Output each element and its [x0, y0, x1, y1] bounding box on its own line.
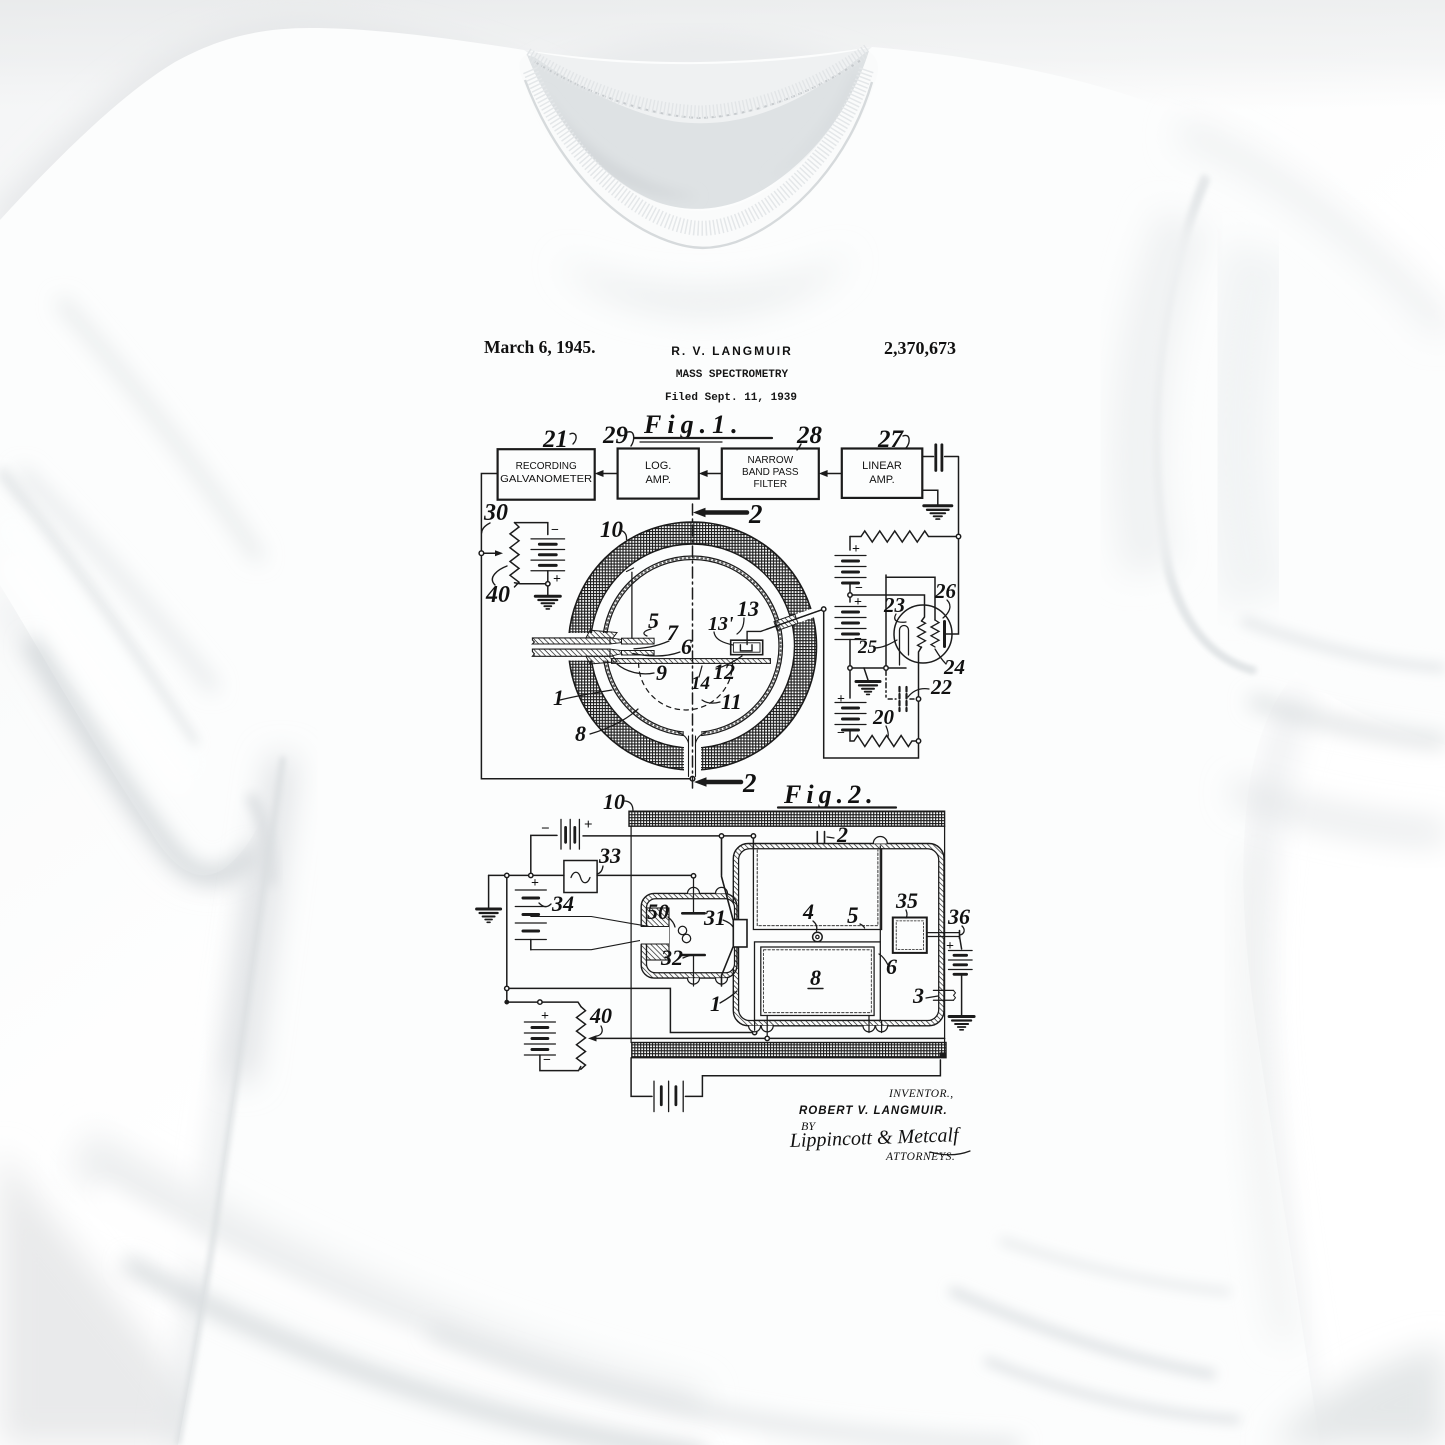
svg-text:RECORDING: RECORDING [516, 461, 577, 472]
svg-text:+: + [852, 542, 860, 557]
svg-text:NARROW: NARROW [748, 455, 794, 466]
svg-text:1: 1 [553, 685, 564, 710]
svg-text:March 6, 1945.: March 6, 1945. [484, 337, 595, 357]
svg-text:13': 13' [708, 613, 734, 635]
svg-text:21: 21 [542, 426, 568, 453]
svg-text:R. V. LANGMUIR: R. V. LANGMUIR [671, 344, 793, 358]
svg-text:35: 35 [895, 888, 918, 913]
svg-text:−: − [551, 523, 559, 538]
svg-text:40: 40 [589, 1003, 612, 1028]
svg-text:+: + [584, 817, 593, 833]
svg-text:33: 33 [598, 843, 621, 868]
svg-text:3: 3 [912, 983, 924, 1008]
svg-text:13: 13 [737, 596, 759, 621]
svg-text:30: 30 [483, 500, 508, 526]
svg-text:−: − [541, 821, 550, 837]
svg-text:FILTER: FILTER [753, 479, 787, 490]
svg-text:27: 27 [877, 426, 905, 453]
svg-text:GALVANOMETER: GALVANOMETER [500, 474, 592, 485]
svg-text:36: 36 [947, 904, 970, 929]
svg-text:10: 10 [603, 789, 625, 814]
svg-text:4: 4 [802, 899, 814, 924]
svg-text:22: 22 [930, 675, 953, 699]
svg-text:1: 1 [710, 991, 721, 1016]
svg-text:11: 11 [721, 689, 742, 714]
svg-text:2: 2 [748, 499, 763, 529]
svg-text:14: 14 [691, 673, 710, 694]
svg-text:LINEAR: LINEAR [862, 460, 902, 472]
svg-text:ATTORNEYS.: ATTORNEYS. [885, 1151, 955, 1163]
svg-text:2: 2 [742, 768, 757, 798]
svg-text:+: + [553, 572, 561, 587]
svg-text:ROBERT V. LANGMUIR.: ROBERT V. LANGMUIR. [799, 1105, 948, 1117]
svg-text:8: 8 [575, 721, 586, 746]
svg-text:MASS SPECTROMETRY: MASS SPECTROMETRY [676, 369, 789, 381]
svg-text:34: 34 [551, 891, 574, 916]
svg-text:+: + [837, 692, 845, 707]
svg-text:−: − [837, 726, 845, 741]
svg-text:31: 31 [703, 905, 726, 930]
svg-text:26: 26 [934, 579, 957, 603]
svg-text:+: + [946, 939, 954, 954]
svg-text:Filed Sept. 11, 1939: Filed Sept. 11, 1939 [665, 392, 797, 404]
svg-text:Fig.2.: Fig.2. [783, 780, 878, 809]
svg-text:40: 40 [485, 582, 510, 608]
svg-text:8: 8 [810, 965, 821, 990]
svg-text:+: + [531, 876, 539, 891]
svg-text:AMP.: AMP. [869, 474, 894, 486]
svg-text:29: 29 [602, 422, 629, 449]
svg-text:23: 23 [883, 593, 905, 617]
svg-text:−: − [543, 1053, 551, 1068]
svg-text:BAND PASS: BAND PASS [742, 467, 799, 478]
svg-text:2,370,673: 2,370,673 [884, 338, 956, 358]
svg-text:AMP.: AMP. [645, 474, 670, 486]
svg-text:Fig.1.: Fig.1. [643, 410, 744, 439]
svg-text:INVENTOR.,: INVENTOR., [888, 1088, 954, 1100]
svg-text:20: 20 [872, 705, 895, 729]
svg-text:50: 50 [647, 899, 669, 924]
svg-text:32: 32 [660, 945, 683, 970]
svg-text:LOG.: LOG. [645, 460, 671, 472]
svg-text:+: + [854, 595, 862, 610]
svg-text:6: 6 [681, 634, 692, 659]
svg-text:9: 9 [656, 660, 667, 685]
svg-text:2: 2 [836, 822, 848, 847]
svg-text:5: 5 [847, 903, 859, 928]
svg-text:−: − [855, 581, 863, 596]
svg-text:6: 6 [886, 954, 897, 979]
